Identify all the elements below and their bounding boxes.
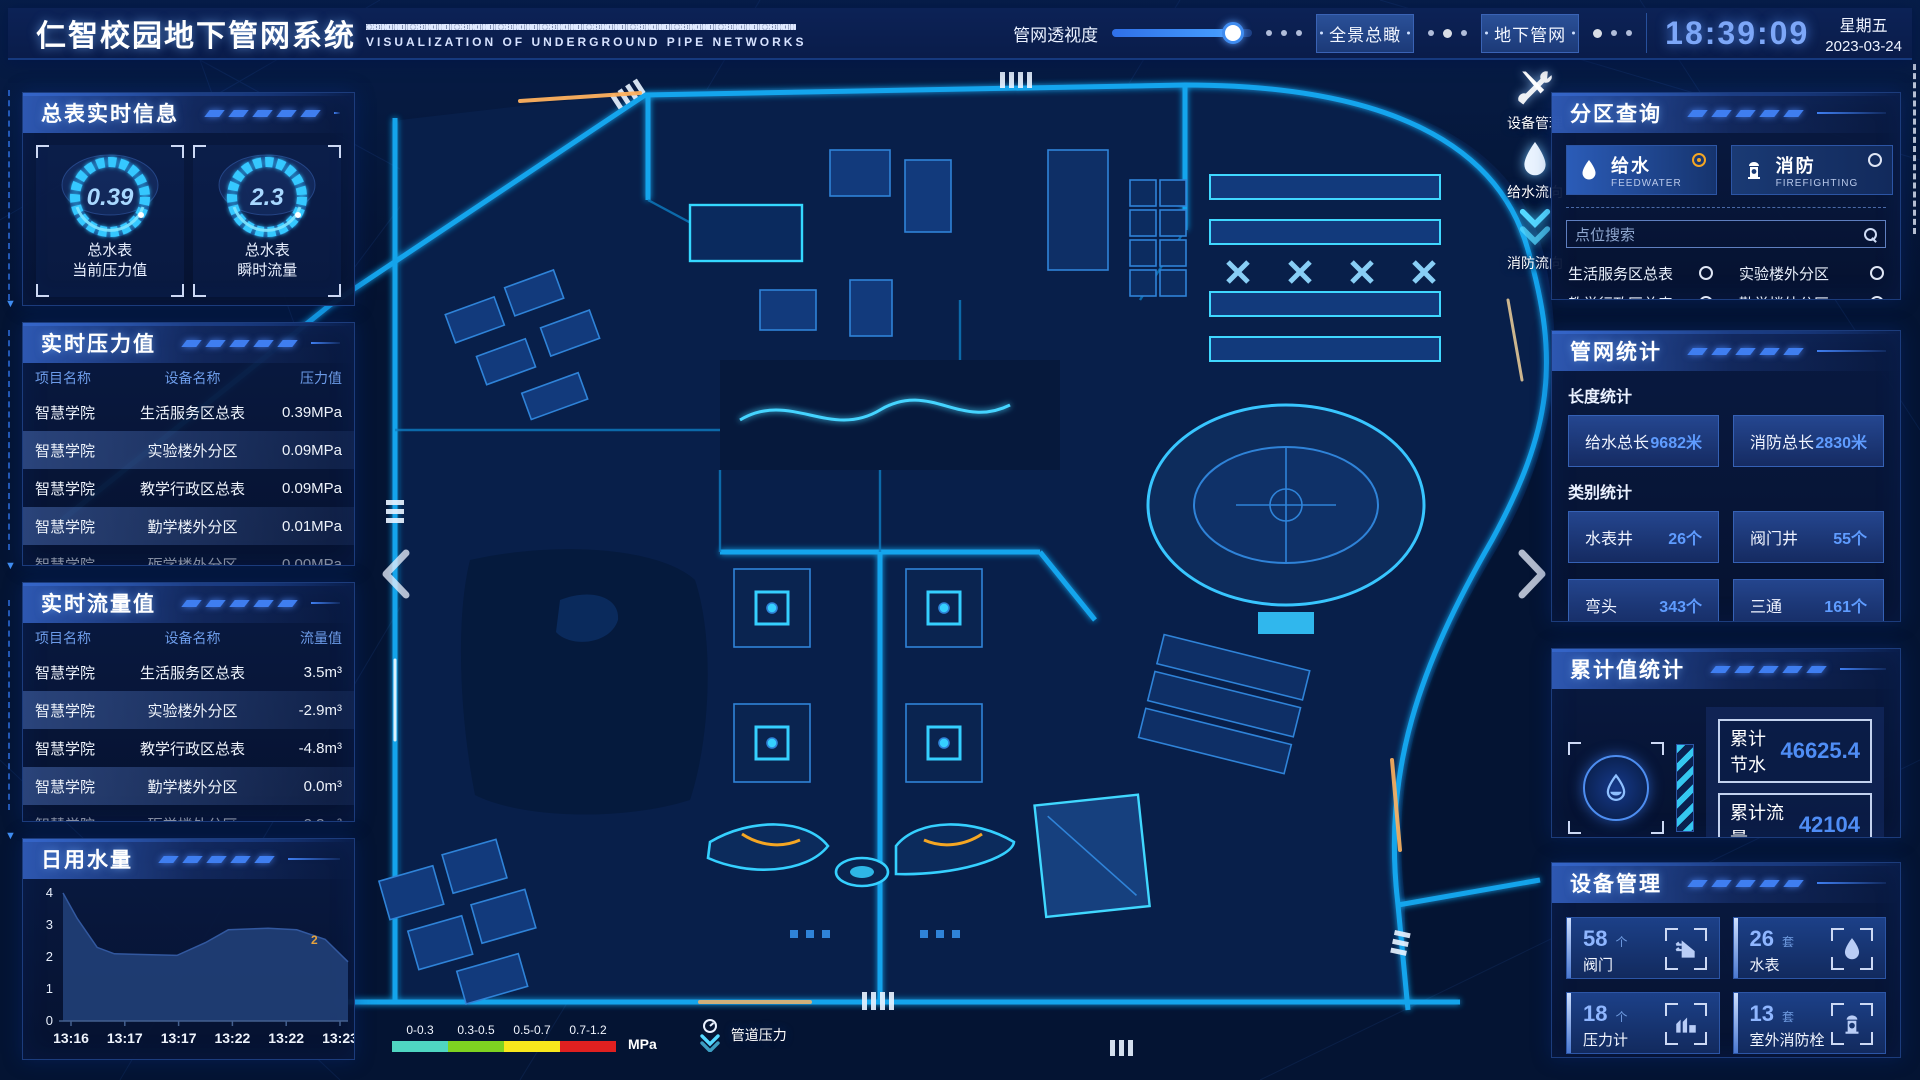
legend-color-segment xyxy=(448,1041,504,1052)
overview-button[interactable]: 全景总瞰 xyxy=(1316,14,1414,53)
legend-range: 0.3-0.5 xyxy=(457,1023,494,1037)
accum-total-flow: 累计流量42104 xyxy=(1718,793,1872,838)
svg-text:13:16: 13:16 xyxy=(53,1030,89,1046)
svg-text:4: 4 xyxy=(46,885,53,900)
panel-device-mgmt: 设备管理 58个 阀门 26套 水表 18个 压力计 xyxy=(1551,862,1901,1058)
stat-valve-wells: 阀门井55个 xyxy=(1733,511,1884,563)
svg-text:2: 2 xyxy=(46,949,53,964)
pool xyxy=(690,205,802,261)
header-dots-decoration xyxy=(366,24,796,30)
water-drop-icon xyxy=(1577,158,1601,182)
left-rail-decoration xyxy=(8,90,10,300)
table-row[interactable]: 智慧学院教学行政区总表-4.8m³ xyxy=(23,729,354,767)
gauge-label-line1: 总水表 xyxy=(72,241,147,261)
pan-right-arrow[interactable] xyxy=(1516,548,1550,600)
panel-zone-query: 分区查询 给水FEEDWATER 消防FIREFIGHTING 点位搜索 生活服… xyxy=(1551,92,1901,300)
legend-color-segment xyxy=(560,1041,616,1052)
category-stats-label: 类别统计 xyxy=(1552,467,1900,511)
panel-pipe-stats: 管网统计 长度统计 给水总长9682米 消防总长2830米 类别统计 水表井26… xyxy=(1551,330,1901,622)
panel-realtime-flow: 实时流量值 项目名称设备名称流量值 智慧学院生活服务区总表3.5m³ 智慧学院实… xyxy=(22,582,355,822)
gauge-pressure: 0.39 总水表 当前压力值 xyxy=(36,145,184,297)
pipe-opacity-slider[interactable] xyxy=(1112,29,1252,37)
table-row[interactable]: 智慧学院实验楼外分区-2.9m³ xyxy=(23,691,354,729)
panel-title: 分区查询 xyxy=(1552,98,1662,128)
svg-text:2: 2 xyxy=(311,933,318,947)
gauge-label-line2: 瞬时流量 xyxy=(237,261,297,281)
tab-feedwater[interactable]: 给水FEEDWATER xyxy=(1566,145,1717,195)
slider-thumb[interactable] xyxy=(1222,22,1244,44)
search-icon xyxy=(1863,227,1877,241)
pipe-pressure-icon xyxy=(697,1018,723,1052)
table-row[interactable]: 智慧学院生活服务区总表0.39MPa xyxy=(23,393,354,431)
water-drop-icon xyxy=(1601,773,1631,803)
panel-title: 设备管理 xyxy=(1552,868,1662,898)
hill xyxy=(720,360,1060,470)
panel-title: 累计值统计 xyxy=(1552,654,1685,684)
legend-color-segment xyxy=(504,1041,560,1052)
stat-tees: 三通161个 xyxy=(1733,579,1884,622)
device-card-valves[interactable]: 58个 阀门 xyxy=(1566,917,1720,979)
date: 2023-03-24 xyxy=(1825,38,1902,55)
panel-accumulated: 累计值统计 累计节水46625.4 累计流量42104 xyxy=(1551,648,1901,838)
hydrant-icon xyxy=(1742,158,1766,182)
table-header: 项目名称设备名称流量值 xyxy=(23,623,354,653)
length-stats-label: 长度统计 xyxy=(1552,371,1900,415)
gauge-label-line1: 总水表 xyxy=(237,241,297,261)
search-placeholder: 点位搜索 xyxy=(1575,224,1635,245)
chevrons-down-icon xyxy=(1517,208,1553,250)
point-option[interactable]: 实验楼外分区 xyxy=(1739,258,1884,288)
device-card-pressure-gauges[interactable]: 18个 压力计 xyxy=(1566,992,1720,1054)
legend-color-segment xyxy=(392,1041,448,1052)
accum-water-saved: 累计节水46625.4 xyxy=(1718,719,1872,783)
stat-fire-length: 消防总长2830米 xyxy=(1733,415,1884,467)
stat-elbows: 弯头343个 xyxy=(1568,579,1719,622)
table-row[interactable]: 智慧学院生活服务区总表3.5m³ xyxy=(23,653,354,691)
svg-text:13:23: 13:23 xyxy=(322,1030,354,1046)
radio-selected xyxy=(1692,153,1706,167)
dashboard: 仁智校园地下管网系统 VISUALIZATION OF UNDERGROUND … xyxy=(0,0,1920,1080)
clock: 18:39:09 xyxy=(1665,15,1809,52)
app-title: 仁智校园地下管网系统 xyxy=(8,11,356,55)
app-subtitle: VISUALIZATION OF UNDERGROUND PIPE NETWOR… xyxy=(366,35,806,49)
svg-text:3: 3 xyxy=(46,917,53,932)
header: 仁智校园地下管网系统 VISUALIZATION OF UNDERGROUND … xyxy=(8,8,1912,60)
point-option[interactable]: 勤学楼外分区 xyxy=(1739,288,1884,300)
svg-text:1: 1 xyxy=(46,981,53,996)
gauge-ring: 0.39 xyxy=(44,145,176,245)
pipe-pressure-label: 管道压力 xyxy=(731,1025,787,1045)
table-row[interactable]: 智慧学院勤学楼外分区0.0m³ xyxy=(23,767,354,805)
panel-daily-water: 日用水量 0123413:1613:1713:1713:2213:2213:23… xyxy=(22,838,355,1060)
table-row[interactable]: 智慧学院勤学楼外分区0.01MPa xyxy=(23,507,354,545)
point-search-input[interactable]: 点位搜索 xyxy=(1566,220,1886,248)
legend-range: 0.7-1.2 xyxy=(569,1023,606,1037)
gauge-flow: 2.3 总水表 瞬时流量 xyxy=(193,145,341,297)
gauge-label-line2: 当前压力值 xyxy=(72,261,147,281)
point-option[interactable]: 教学行政区总表 xyxy=(1568,288,1713,300)
pressure-legend: 0-0.3 0.3-0.5 0.5-0.7 0.7-1.2 MPa 管道压力 xyxy=(392,1018,787,1052)
table-header: 项目名称设备名称压力值 xyxy=(23,363,354,393)
lake xyxy=(461,549,708,814)
stripe-divider xyxy=(1676,744,1694,832)
table-row[interactable]: 智慧学院教学行政区总表0.09MPa xyxy=(23,469,354,507)
device-card-meters[interactable]: 26套 水表 xyxy=(1733,917,1887,979)
gym xyxy=(1035,795,1150,917)
panel-title: 日用水量 xyxy=(23,844,133,874)
svg-text:13:17: 13:17 xyxy=(107,1030,143,1046)
legend-unit: MPa xyxy=(628,1036,657,1052)
svg-text:2.3: 2.3 xyxy=(250,184,285,211)
panel-title: 总表实时信息 xyxy=(23,98,179,128)
svg-text:13:22: 13:22 xyxy=(214,1030,250,1046)
svg-text:0: 0 xyxy=(46,1013,53,1028)
radio-unselected xyxy=(1868,153,1882,167)
underground-pipes-button[interactable]: 地下管网 xyxy=(1481,14,1579,53)
panel-title: 管网统计 xyxy=(1552,336,1662,366)
svg-text:13:17: 13:17 xyxy=(161,1030,197,1046)
pan-left-arrow[interactable] xyxy=(378,548,412,600)
svg-text:13:22: 13:22 xyxy=(268,1030,304,1046)
point-option[interactable]: 生活服务区总表 xyxy=(1568,258,1713,288)
feedwater-drop-icon[interactable] xyxy=(1518,139,1552,179)
device-card-hydrants[interactable]: 13套 室外消防栓 xyxy=(1733,992,1887,1054)
panel-title: 实时压力值 xyxy=(23,328,156,358)
right-edge-decoration xyxy=(1913,64,1916,234)
stat-feedwater-length: 给水总长9682米 xyxy=(1568,415,1719,467)
panel-realtime-meter: 总表实时信息 0.39 总水表 当前压力值 xyxy=(22,92,355,306)
table-row[interactable]: 智慧学院实验楼外分区0.09MPa xyxy=(23,431,354,469)
tab-firefighting[interactable]: 消防FIREFIGHTING xyxy=(1731,145,1894,195)
table-row[interactable]: 智慧学院砺学楼外分区2.3m³ xyxy=(23,805,354,822)
svg-text:0.39: 0.39 xyxy=(86,184,133,211)
panel-title: 实时流量值 xyxy=(23,588,156,618)
pipe-pressure-toggle[interactable]: 管道压力 xyxy=(697,1018,787,1052)
stat-meter-wells: 水表井26个 xyxy=(1568,511,1719,563)
panel-realtime-pressure: 实时压力值 项目名称设备名称压力值 智慧学院生活服务区总表0.39MPa 智慧学… xyxy=(22,322,355,566)
pipe-opacity-label: 管网透视度 xyxy=(1013,21,1098,46)
legend-range: 0-0.3 xyxy=(406,1023,433,1037)
legend-range: 0.5-0.7 xyxy=(513,1023,550,1037)
table-row[interactable]: 智慧学院砺学楼外分区0.00MPa xyxy=(23,545,354,566)
gauge-ring: 2.3 xyxy=(201,145,333,245)
daily-water-chart: 0123413:1613:1713:1713:2213:2213:232 xyxy=(23,879,354,1055)
water-saving-icon xyxy=(1568,742,1664,834)
weekday: 星期五 xyxy=(1840,12,1888,36)
